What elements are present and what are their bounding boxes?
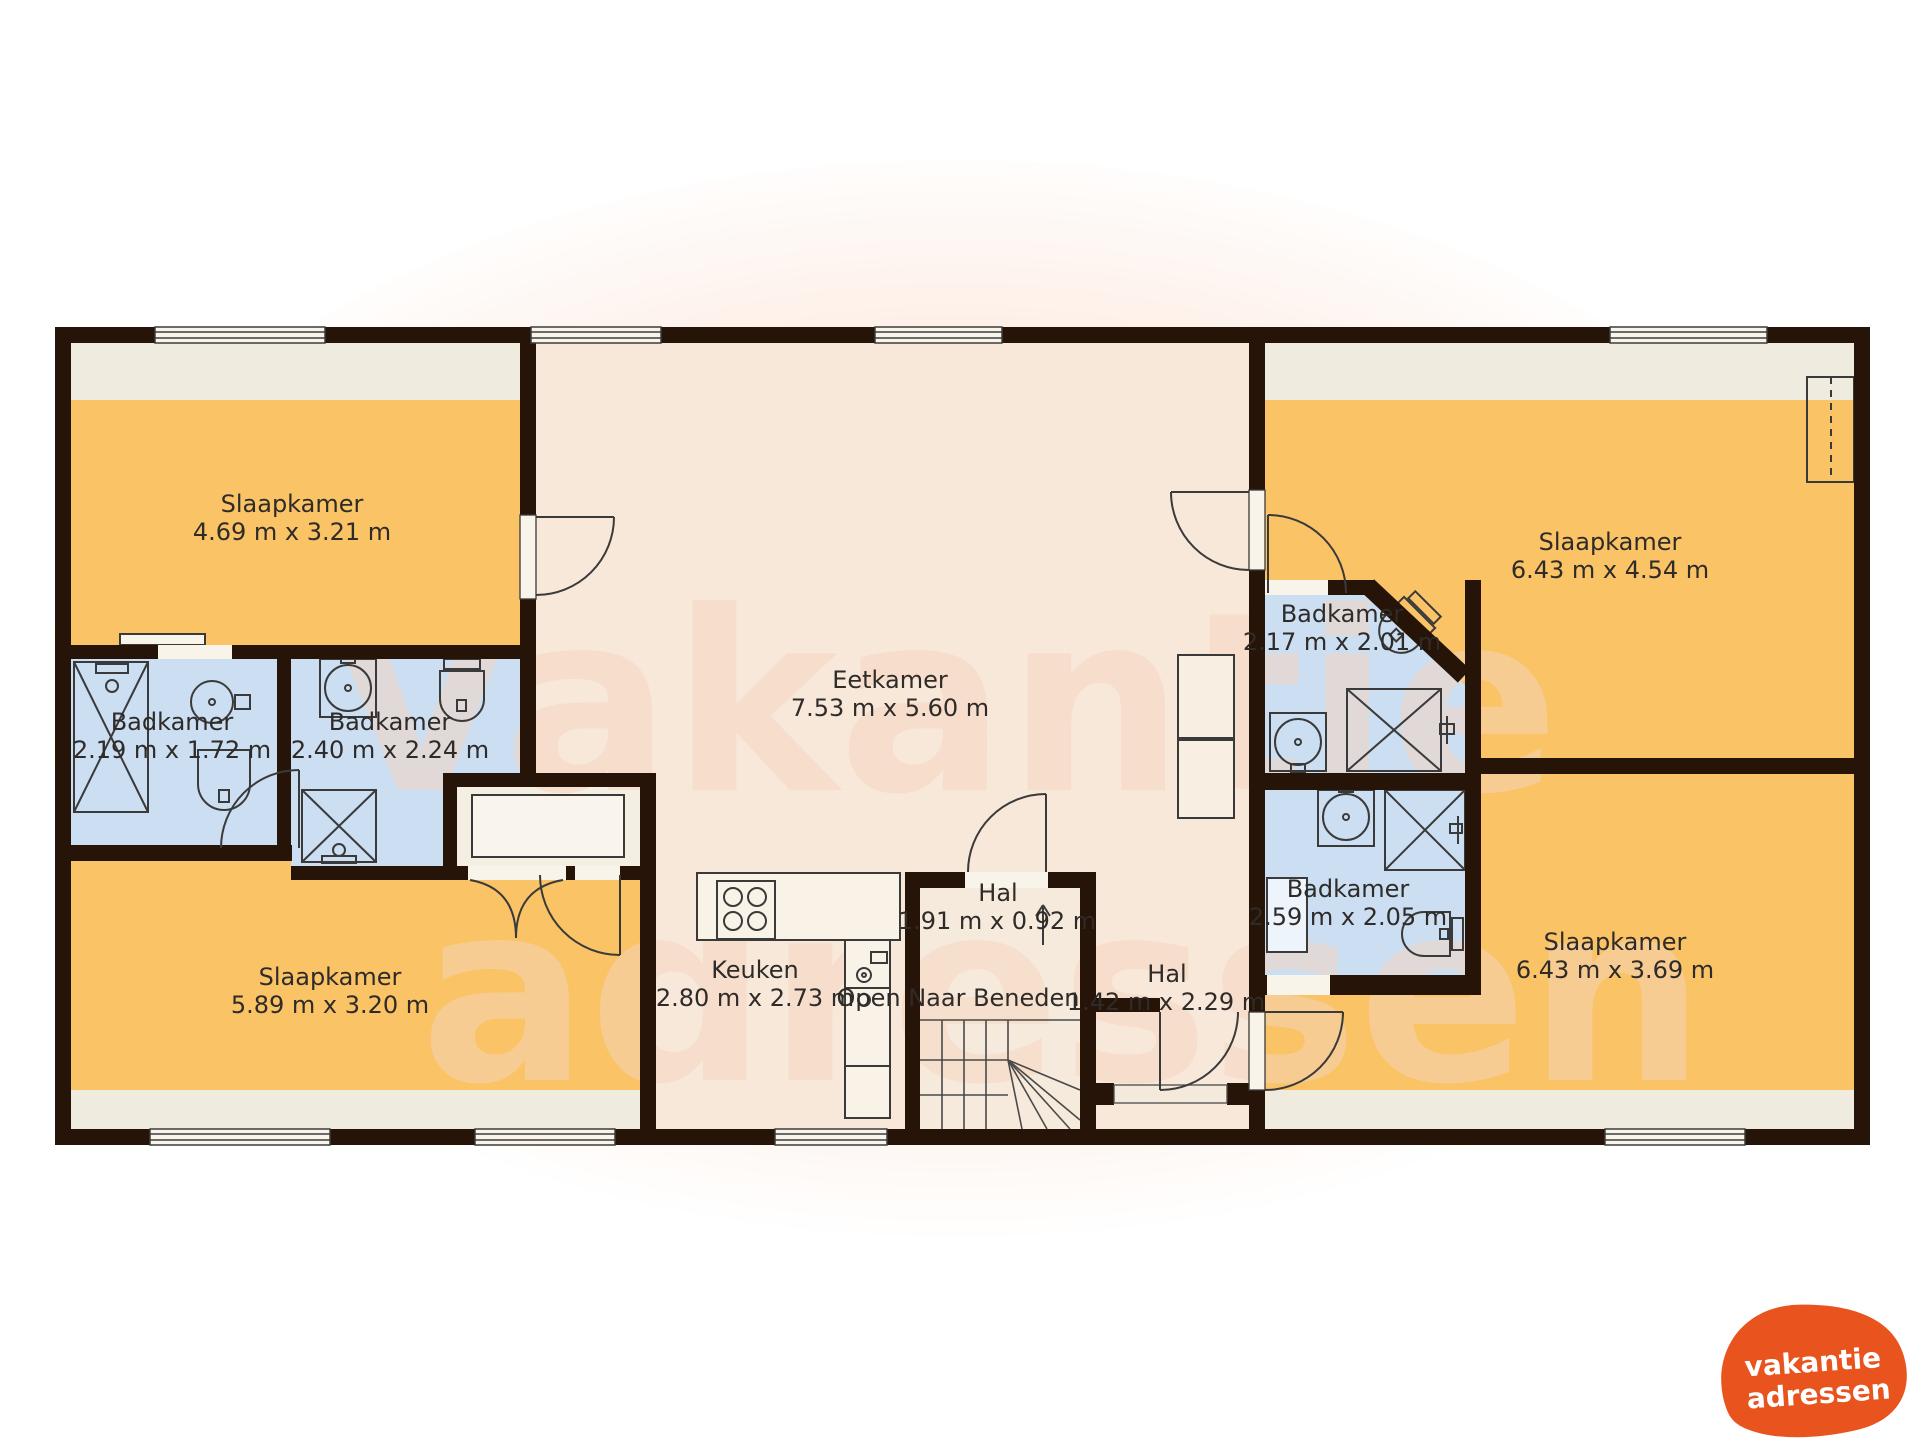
hall-stairs-dims: 1.91 m x 0.92 m [898, 907, 1096, 935]
window [775, 1129, 887, 1145]
window [1605, 1129, 1745, 1145]
window [875, 327, 1002, 343]
closet-inner [472, 795, 624, 857]
window [1610, 327, 1767, 343]
window [150, 1129, 330, 1145]
bedroom-bl-label: Slaapkamer [259, 963, 402, 991]
bedroom-tl-strip [71, 343, 520, 400]
window [155, 327, 325, 343]
bedroom-br-dims: 6.43 m x 3.69 m [1516, 956, 1714, 984]
bath2-label: Badkamer [329, 708, 452, 736]
bath3-label: Badkamer [1281, 600, 1404, 628]
bath2-dims: 2.40 m x 2.24 m [291, 736, 489, 764]
bedroom-tl-dims: 4.69 m x 3.21 m [193, 518, 391, 546]
bath4-label: Badkamer [1287, 875, 1410, 903]
bath3-dims: 2.17 m x 2.01 m [1243, 628, 1441, 656]
bath1-dims: 2.19 m x 1.72 m [73, 736, 271, 764]
shelf [120, 634, 205, 645]
passage-recess [1114, 1085, 1227, 1103]
bedroom-tl-label: Slaapkamer [221, 490, 364, 518]
cabinet [1178, 655, 1234, 738]
window [531, 327, 661, 343]
bath4-dims: 2.59 m x 2.05 m [1249, 903, 1447, 931]
dining-dims: 7.53 m x 5.60 m [791, 694, 989, 722]
bedroom-tr-dims: 6.43 m x 4.54 m [1511, 556, 1709, 584]
bedroom-br-label: Slaapkamer [1544, 928, 1687, 956]
hall-right-label: Hal [1147, 960, 1186, 988]
hall-stairs-label: Hal [978, 879, 1017, 907]
stairs-note: Open Naar Beneden [836, 984, 1079, 1012]
floorplan-page: vakantie adressen [0, 0, 1920, 1440]
bedroom-tr-label: Slaapkamer [1539, 528, 1682, 556]
vakantieadressen-logo: vakantie adressen [1716, 1297, 1911, 1440]
cabinet [1178, 740, 1234, 818]
floorplan-canvas: vakantie adressen [0, 0, 1920, 1440]
bedroom-bl-dims: 5.89 m x 3.20 m [231, 991, 429, 1019]
dining-label: Eetkamer [832, 666, 948, 694]
bedroom-tr-strip [1265, 343, 1854, 400]
window [475, 1129, 615, 1145]
kitchen-label: Keuken [711, 956, 799, 984]
bath1-label: Badkamer [111, 708, 234, 736]
hall-right-dims: 1.42 m x 2.29 m [1067, 988, 1265, 1016]
kitchen-dims: 2.80 m x 2.73 m [656, 984, 854, 1012]
